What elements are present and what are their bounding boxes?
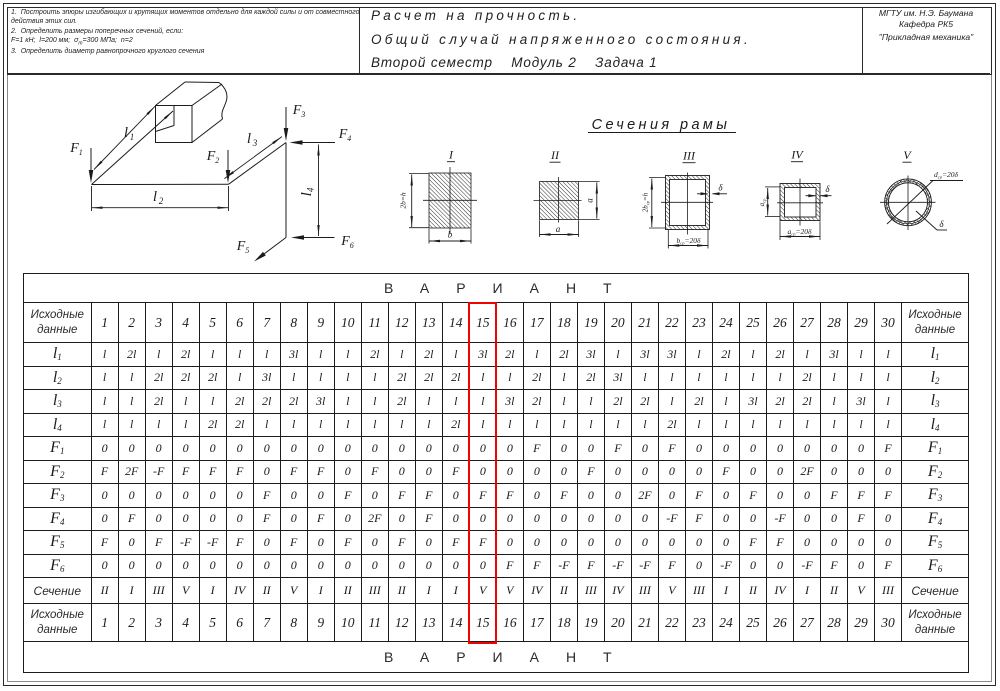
- svg-text:3: 3: [252, 138, 258, 148]
- svg-text:III: III: [682, 149, 696, 163]
- svg-text:l: l: [124, 125, 128, 141]
- svg-text:Сечения рамы: Сечения рамы: [592, 117, 731, 133]
- svg-text:a: a: [556, 224, 561, 234]
- svg-text:b: b: [448, 230, 453, 240]
- svg-text:II: II: [550, 148, 560, 162]
- svg-text:2b=h: 2b=h: [399, 192, 408, 209]
- svg-text:V: V: [903, 148, 912, 162]
- svg-text:1: 1: [130, 132, 135, 142]
- svg-text:δ: δ: [718, 183, 723, 193]
- svg-text:2: 2: [159, 196, 164, 206]
- svg-text:F1: F1: [69, 141, 83, 157]
- svg-text:δ: δ: [939, 219, 944, 229]
- svg-text:IV: IV: [790, 148, 804, 162]
- svg-text:l: l: [247, 131, 251, 147]
- svg-text:a: a: [585, 198, 595, 203]
- svg-text:dср=20δ: dср=20δ: [934, 170, 959, 180]
- svg-text:2bср=h: 2bср=h: [642, 192, 651, 212]
- svg-text:l4: l4: [299, 187, 316, 196]
- svg-text:bср=20δ: bср=20δ: [676, 236, 701, 246]
- svg-text:δ: δ: [825, 184, 830, 194]
- svg-text:I: I: [448, 148, 454, 162]
- svg-text:F5: F5: [236, 239, 250, 255]
- svg-text:l: l: [153, 189, 157, 205]
- svg-text:F2: F2: [206, 149, 220, 165]
- svg-text:F3: F3: [292, 103, 306, 119]
- svg-text:aср: aср: [758, 198, 767, 206]
- svg-text:F4: F4: [338, 127, 352, 143]
- svg-text:aср=20δ: aср=20δ: [787, 227, 812, 237]
- svg-text:F6: F6: [340, 234, 354, 250]
